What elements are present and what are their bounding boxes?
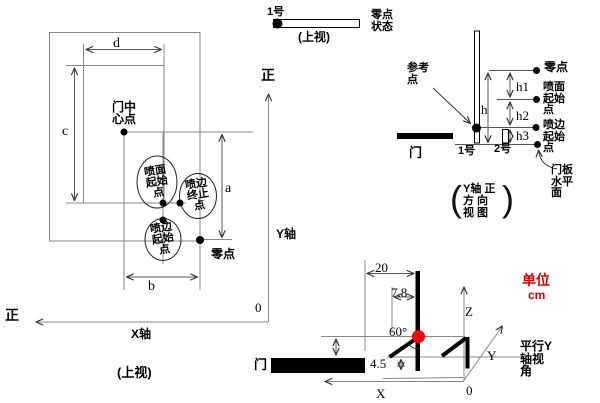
- gun-bar-origin: [466, 337, 470, 369]
- door-center-label: 门中 心点: [106, 101, 142, 125]
- y-axis-label: Y轴: [276, 229, 296, 241]
- unit-value: cm: [528, 290, 545, 302]
- angle-60-label: 60°: [389, 324, 407, 340]
- gun-zero-dot: [273, 19, 283, 29]
- gun2-bar: [503, 130, 509, 144]
- side-edge-start-label: 喷边 起始 点: [543, 120, 565, 155]
- iso-door-label: 门: [254, 359, 267, 371]
- reference-point-arrow: [433, 88, 471, 124]
- gun-bar-iso: [416, 271, 421, 371]
- view-paren-open: (: [450, 177, 462, 221]
- top-view-caption: (上视): [117, 367, 152, 379]
- gun-bar-top-view: [274, 20, 360, 28]
- iso-z-label: Z: [465, 304, 473, 320]
- origin-label: 0: [255, 300, 262, 316]
- spray-edge-end-label: 喷边 终止 点: [177, 176, 220, 215]
- base-line: [383, 378, 463, 379]
- side-view-caption: Y轴 正 方 向 视 图: [463, 183, 495, 219]
- zero-level-dot: [533, 67, 540, 74]
- door-bar-side: [397, 133, 453, 139]
- dim-b-label: b: [148, 279, 155, 295]
- side-zero-label: 零点: [544, 62, 568, 74]
- iso-origin-label: 0: [466, 383, 473, 399]
- view-paren-close: ): [502, 177, 514, 221]
- zero-point-dot: [196, 236, 204, 244]
- gun1-top-label: 1号: [267, 7, 284, 19]
- edge-start-dot: [533, 124, 540, 131]
- door-bar-iso: [271, 358, 365, 373]
- dim-20-label: 20: [375, 260, 388, 276]
- reference-point-label: 参考 点: [407, 63, 429, 86]
- technical-diagram-canvas: d c a b 门中 心点 喷面 起始 点 喷边 终止 点 喷边 起始 点 零点…: [0, 0, 600, 403]
- door-center-point: [121, 129, 128, 136]
- gun2-label: 2号: [494, 144, 511, 156]
- side-door-label: 门: [409, 147, 422, 159]
- dim-h1-label: h1: [516, 79, 529, 95]
- dim-a-label: a: [225, 181, 231, 197]
- positive-up-label: 正: [261, 70, 275, 82]
- dim-45-label: 4.5: [370, 356, 386, 372]
- x-axis-label: X轴: [131, 329, 151, 341]
- strip-view-caption: (上视): [298, 32, 330, 44]
- zero-status-label: 零点 状态: [371, 10, 393, 33]
- iso-y-label: Y: [487, 348, 496, 364]
- rotation-point-red-dot: [412, 330, 425, 343]
- side-face-start-label: 喷面 起始 点: [543, 82, 565, 117]
- dim-d-label: d: [113, 36, 120, 52]
- iso-x-label: X: [376, 386, 385, 402]
- face-start-dot: [533, 96, 540, 103]
- door-outer-rect: [50, 33, 201, 242]
- spray-face-start-label: 喷面 起始 点: [135, 163, 180, 202]
- iso-view-note: 平行Y 轴视 角: [520, 340, 552, 378]
- dim-78-label: 7.8: [391, 285, 407, 301]
- top-strip: [273, 19, 360, 29]
- zero-point-label: 零点: [211, 249, 235, 261]
- spray-face-start-point: [160, 200, 167, 207]
- panel-plane-label: 门板 水平 面: [551, 165, 573, 200]
- dim-h2-label: h2: [516, 108, 529, 124]
- panel-plane-dot: [534, 141, 541, 148]
- dim-c-label: c: [62, 124, 68, 140]
- dim-h3-label: h3: [516, 128, 529, 144]
- unit-title: 单位: [522, 275, 550, 287]
- dim-h-label: h: [481, 102, 488, 118]
- positive-left-label: 正: [5, 310, 19, 322]
- reference-point-dot: [472, 124, 481, 133]
- side-view-solids: [397, 31, 509, 143]
- gun1-label: 1号: [458, 146, 475, 158]
- gun-tilted-origin: [442, 338, 466, 356]
- spray-edge-start-label: 喷边 起始 点: [142, 220, 185, 259]
